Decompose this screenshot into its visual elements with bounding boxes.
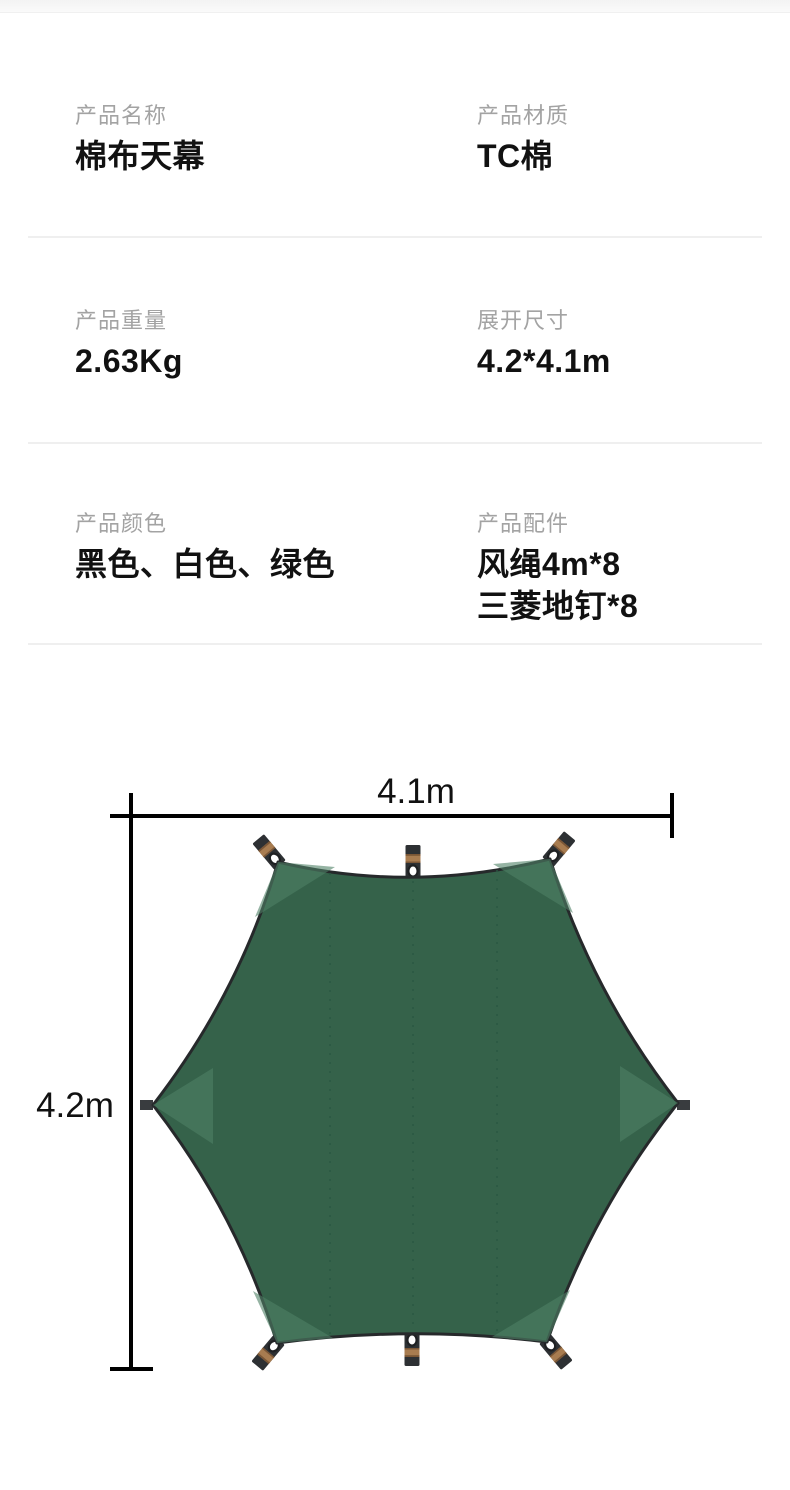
side-anchor-left	[140, 1100, 153, 1110]
spec-label: 产品重量	[75, 309, 477, 333]
accessory-line-1: 风绳4m*8	[477, 543, 762, 585]
spec-value: 4.2*4.1m	[477, 340, 762, 382]
spec-value: 黑色、白色、绿色	[75, 543, 477, 585]
tarp-body	[153, 859, 678, 1343]
spec-row-3: 产品颜色 黑色、白色、绿色 产品配件 风绳4m*8 三菱地钉*8	[28, 444, 762, 645]
spec-product-color: 产品颜色 黑色、白色、绿色	[75, 512, 477, 627]
accessory-line-2: 三菱地钉*8	[477, 585, 762, 627]
spec-value: 2.63Kg	[75, 340, 477, 382]
spec-value: TC棉	[477, 135, 762, 177]
top-card-shadow-divider	[0, 0, 790, 13]
product-spec-page: 产品名称 棉布天幕 产品材质 TC棉 产品重量 2.63Kg 展开尺寸 4.2*…	[0, 0, 790, 1490]
side-anchor-right	[677, 1100, 690, 1110]
tarp-diagram-svg: 4.1m 4.2m	[0, 645, 790, 1490]
tarp-dimension-diagram: 4.1m 4.2m	[0, 645, 790, 1490]
webbing-tab-top-center	[406, 845, 421, 879]
spec-label: 产品颜色	[75, 512, 477, 536]
spec-row-2: 产品重量 2.63Kg 展开尺寸 4.2*4.1m	[28, 238, 762, 444]
spec-label: 产品名称	[75, 104, 477, 128]
spec-value: 风绳4m*8 三菱地钉*8	[477, 543, 762, 627]
webbing-tab-bottom-center	[405, 1332, 420, 1366]
spec-label: 展开尺寸	[477, 309, 762, 333]
spec-accessories: 产品配件 风绳4m*8 三菱地钉*8	[477, 512, 762, 627]
spec-product-material: 产品材质 TC棉	[477, 104, 762, 177]
spec-product-name: 产品名称 棉布天幕	[75, 104, 477, 177]
spec-row-1: 产品名称 棉布天幕 产品材质 TC棉	[28, 13, 762, 238]
width-dimension-label: 4.1m	[377, 772, 455, 811]
spec-value: 棉布天幕	[75, 135, 477, 177]
spec-label: 产品配件	[477, 512, 762, 536]
height-dimension-label: 4.2m	[36, 1086, 114, 1125]
spec-unfolded-size: 展开尺寸 4.2*4.1m	[477, 309, 762, 382]
spec-grid: 产品名称 棉布天幕 产品材质 TC棉 产品重量 2.63Kg 展开尺寸 4.2*…	[0, 13, 790, 645]
spec-product-weight: 产品重量 2.63Kg	[75, 309, 477, 382]
spec-label: 产品材质	[477, 104, 762, 128]
